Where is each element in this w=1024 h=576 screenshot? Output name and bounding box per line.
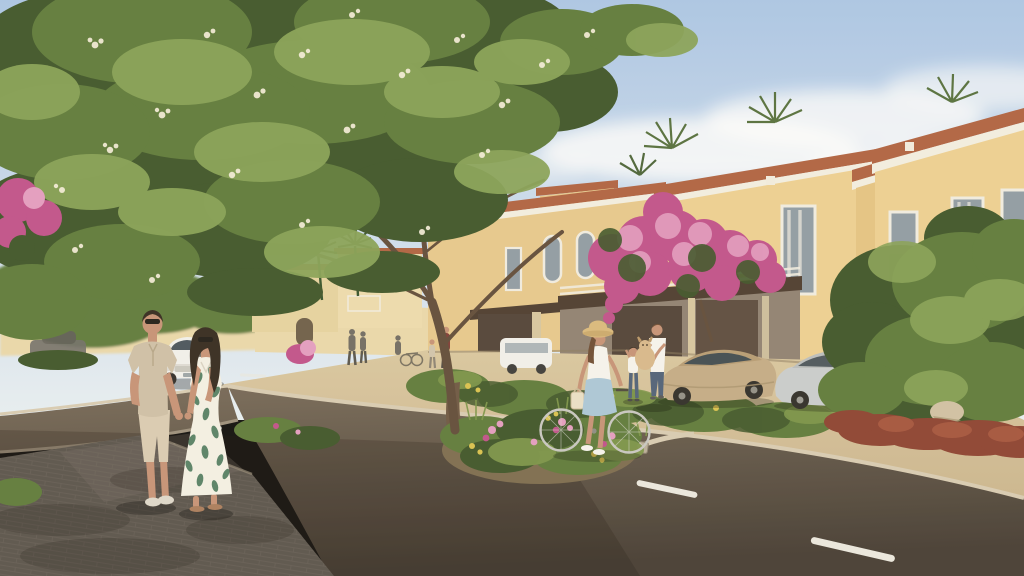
sunlight-wash <box>0 0 1024 576</box>
scene-viewport <box>0 0 1024 576</box>
community-street-rendering <box>0 0 1024 576</box>
